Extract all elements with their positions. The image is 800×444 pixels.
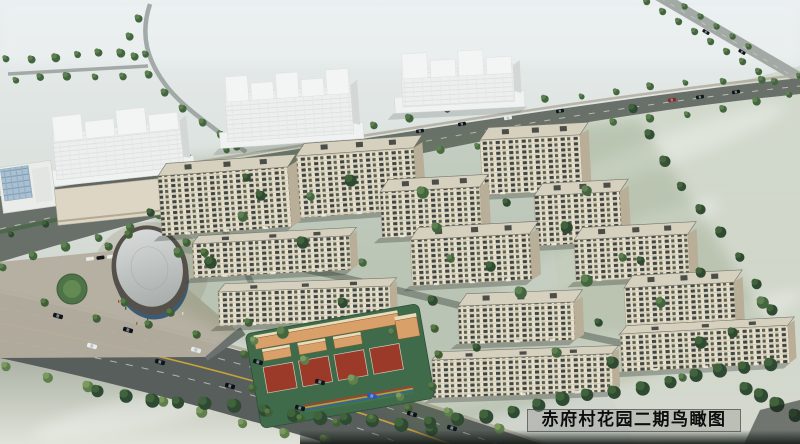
mid-rise-building	[400, 221, 541, 291]
caption-text: 赤府村花园二期鸟瞰图	[542, 412, 727, 429]
mid-rise-building	[148, 154, 301, 241]
sports-court	[263, 362, 297, 393]
mid-rise-building	[449, 290, 585, 350]
scene-svg	[0, 0, 800, 444]
bottom-shadow	[300, 430, 800, 444]
glass-roof-building	[0, 160, 57, 213]
low-rise-building	[183, 227, 359, 283]
caption-bar: 赤府村花园二期鸟瞰图	[527, 409, 741, 432]
birdseye-rendering: 赤府村花园二期鸟瞰图	[0, 0, 800, 444]
sports-court	[369, 343, 403, 374]
